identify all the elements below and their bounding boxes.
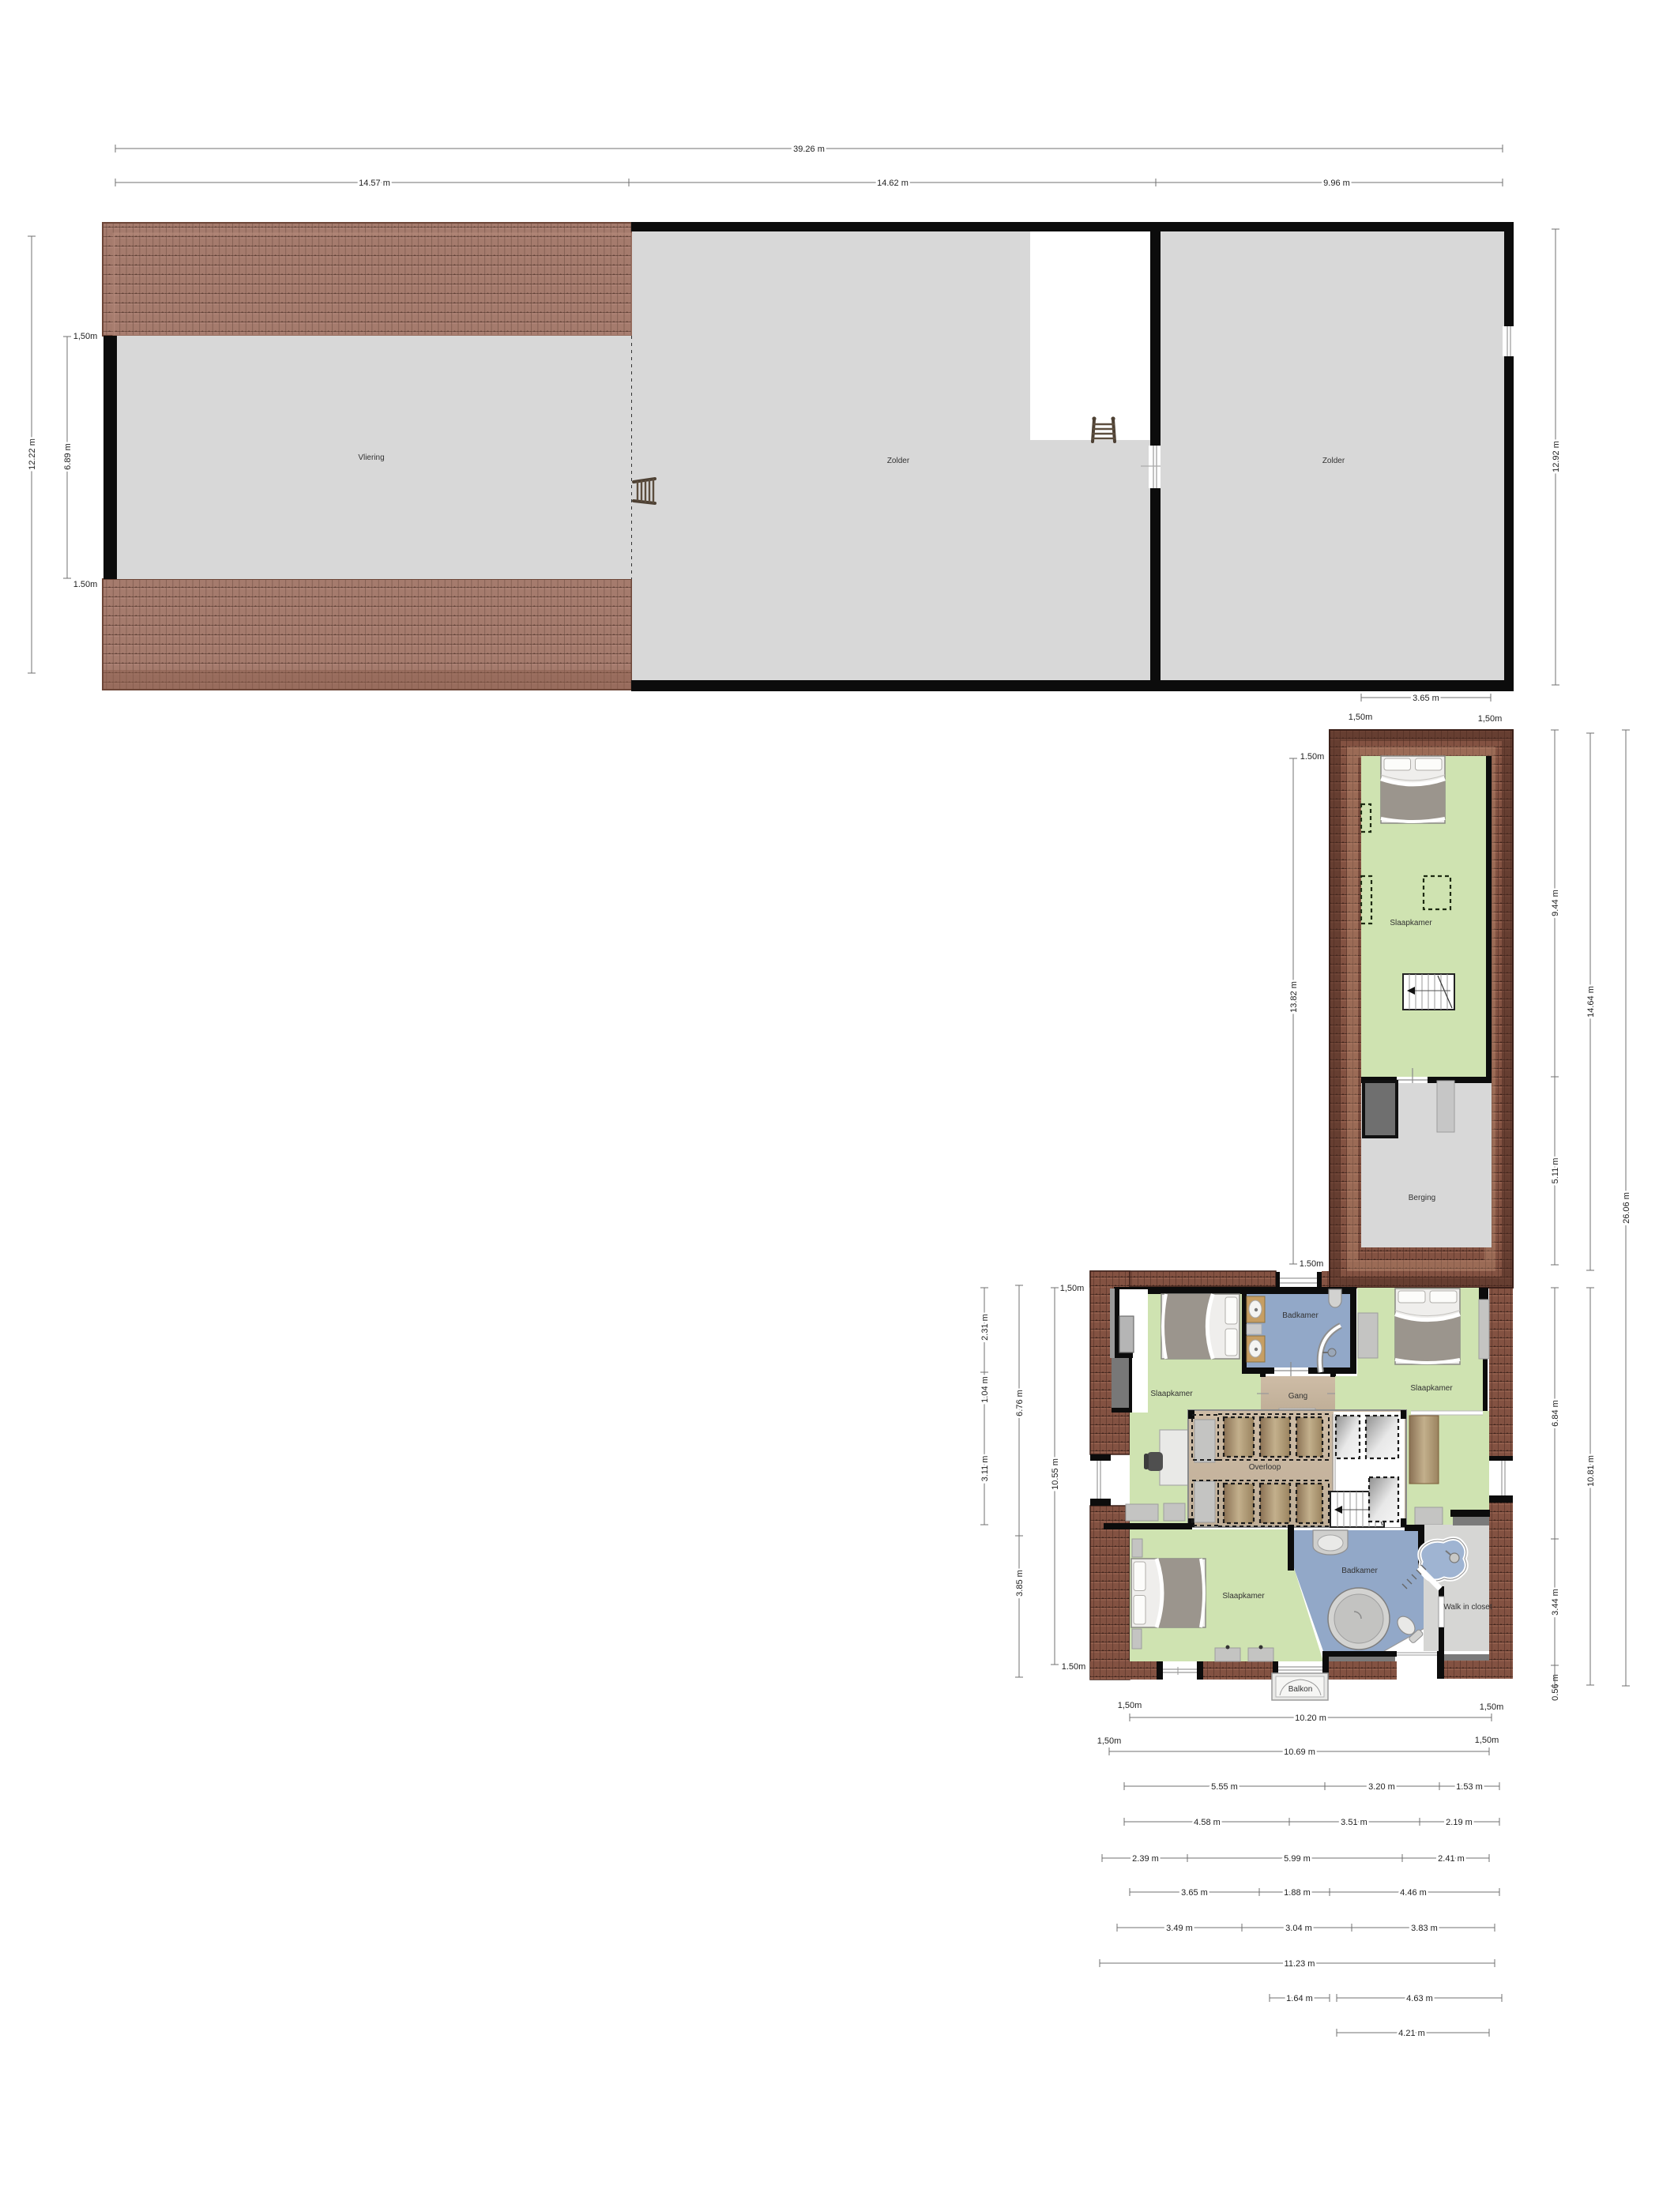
svg-text:Slaapkamer: Slaapkamer [1410,1384,1453,1393]
svg-text:1.50m: 1.50m [1062,1662,1086,1672]
svg-text:3.49 m: 3.49 m [1166,1924,1193,1933]
svg-text:2.31 m: 2.31 m [980,1314,990,1341]
svg-text:4.63 m: 4.63 m [1406,1994,1433,2003]
svg-text:3.65 m: 3.65 m [1181,1888,1208,1898]
svg-text:4.58 m: 4.58 m [1194,1818,1221,1827]
svg-text:0.56 m: 0.56 m [1551,1674,1560,1701]
svg-text:5.11 m: 5.11 m [1551,1158,1560,1184]
svg-text:12.92 m: 12.92 m [1552,441,1561,472]
svg-text:14.57 m: 14.57 m [359,179,390,188]
svg-text:6.84 m: 6.84 m [1551,1400,1560,1427]
svg-text:3.65 m: 3.65 m [1413,694,1439,703]
svg-text:1,50m: 1,50m [1349,713,1373,722]
svg-text:6.89 m: 6.89 m [63,443,73,470]
svg-text:Zolder: Zolder [1322,457,1345,465]
svg-text:14.64 m: 14.64 m [1586,986,1596,1018]
svg-text:10.20 m: 10.20 m [1295,1714,1326,1723]
svg-text:1.88 m: 1.88 m [1284,1888,1311,1898]
svg-text:2.19 m: 2.19 m [1446,1818,1473,1827]
svg-text:1,50m: 1,50m [1478,714,1503,724]
svg-text:1.53 m: 1.53 m [1456,1782,1483,1792]
svg-text:9.44 m: 9.44 m [1551,890,1560,916]
svg-text:Overloop: Overloop [1249,1463,1281,1472]
svg-text:1.50m: 1.50m [1300,1259,1324,1269]
svg-text:Badkamer: Badkamer [1282,1311,1319,1320]
svg-text:9.96 m: 9.96 m [1323,179,1350,188]
svg-text:6.76 m: 6.76 m [1015,1390,1025,1416]
svg-text:2.39 m: 2.39 m [1132,1854,1159,1864]
svg-text:3.04 m: 3.04 m [1285,1924,1312,1933]
svg-text:10.81 m: 10.81 m [1586,1455,1596,1487]
svg-text:5.55 m: 5.55 m [1211,1782,1238,1792]
svg-text:Balkon: Balkon [1288,1685,1313,1694]
svg-text:10.55 m: 10.55 m [1051,1458,1060,1490]
svg-text:Badkamer: Badkamer [1341,1567,1378,1575]
svg-text:14.62 m: 14.62 m [877,179,908,188]
svg-text:12.22 m: 12.22 m [28,438,37,470]
svg-text:4.46 m: 4.46 m [1400,1888,1427,1898]
svg-text:3.11 m: 3.11 m [980,1456,990,1482]
svg-text:39.26 m: 39.26 m [793,145,825,154]
svg-text:Berging: Berging [1409,1194,1435,1202]
svg-text:2.41 m: 2.41 m [1438,1854,1465,1864]
svg-text:4.21 m: 4.21 m [1398,2029,1425,2038]
svg-text:1,50m: 1,50m [1118,1701,1142,1710]
svg-text:1.50m: 1.50m [73,580,98,589]
svg-text:1.64 m: 1.64 m [1286,1994,1313,2003]
svg-text:3.51 m: 3.51 m [1341,1818,1367,1827]
svg-text:10.69 m: 10.69 m [1284,1747,1315,1757]
svg-text:1,50m: 1,50m [73,332,98,341]
svg-text:1,50m: 1,50m [1097,1736,1122,1746]
svg-text:13.82 m: 13.82 m [1289,981,1299,1013]
svg-text:Gang: Gang [1288,1392,1307,1401]
svg-text:11.23 m: 11.23 m [1285,1959,1315,1969]
svg-text:5.99 m: 5.99 m [1284,1854,1311,1864]
svg-text:Zolder: Zolder [887,457,910,465]
svg-text:1.50m: 1.50m [1300,752,1325,762]
svg-text:Vliering: Vliering [358,453,384,462]
svg-text:3.85 m: 3.85 m [1015,1570,1025,1597]
svg-text:1,50m: 1,50m [1480,1702,1504,1712]
svg-text:Slaapkamer: Slaapkamer [1390,919,1432,927]
svg-text:Walk in closet: Walk in closet [1443,1603,1492,1612]
svg-text:3.20 m: 3.20 m [1368,1782,1395,1792]
svg-text:26.06 m: 26.06 m [1622,1192,1631,1224]
svg-text:1.04 m: 1.04 m [980,1376,990,1403]
svg-text:Slaapkamer: Slaapkamer [1222,1592,1265,1601]
svg-text:3.44 m: 3.44 m [1551,1589,1560,1616]
svg-text:1,50m: 1,50m [1475,1736,1499,1745]
svg-text:3.83 m: 3.83 m [1411,1924,1438,1933]
svg-text:Slaapkamer: Slaapkamer [1150,1390,1193,1398]
svg-text:1,50m: 1,50m [1060,1284,1085,1293]
